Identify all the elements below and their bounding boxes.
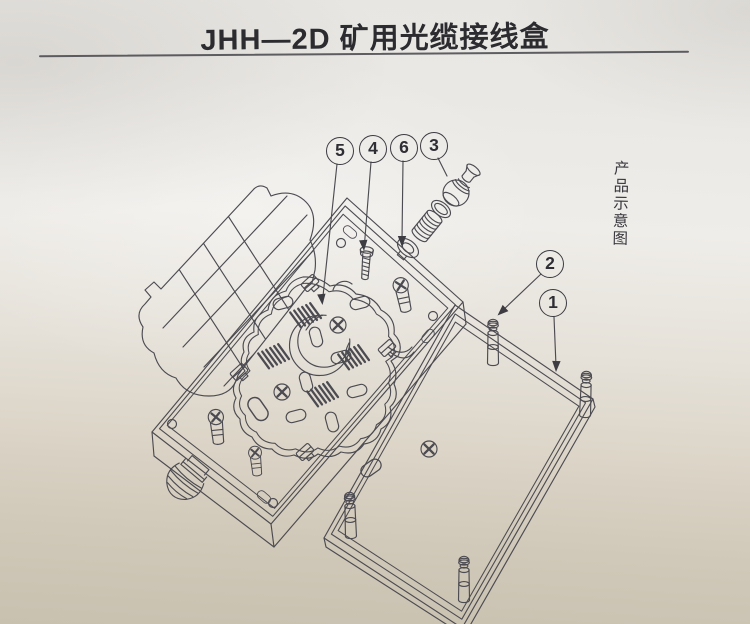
callout-number: 1 — [548, 294, 558, 312]
exploded-diagram — [0, 0, 750, 624]
callout-badge-4: 4 — [359, 135, 387, 163]
side-caption-vertical: 产品示意图 — [607, 160, 631, 248]
callout-number: 4 — [368, 140, 378, 158]
callout-badge-5: 5 — [326, 137, 354, 165]
callout-number: 3 — [429, 137, 439, 155]
tray-lid-open — [139, 185, 348, 399]
callout-number: 2 — [545, 255, 555, 273]
callout-number: 6 — [399, 139, 409, 157]
callout-badge-6: 6 — [390, 134, 418, 162]
fixing-screw — [358, 246, 373, 280]
junction-box-body — [152, 198, 466, 547]
callout-badge-1: 1 — [539, 289, 567, 317]
callout-leaders — [317, 158, 560, 372]
photographed-diagram-page: JHH—2D 矿用光缆接线盒 产品示意图 5 4 6 3 2 1 — [0, 0, 750, 624]
callout-number: 5 — [335, 142, 345, 160]
callout-badge-3: 3 — [420, 132, 448, 160]
callout-badge-2: 2 — [536, 250, 564, 278]
